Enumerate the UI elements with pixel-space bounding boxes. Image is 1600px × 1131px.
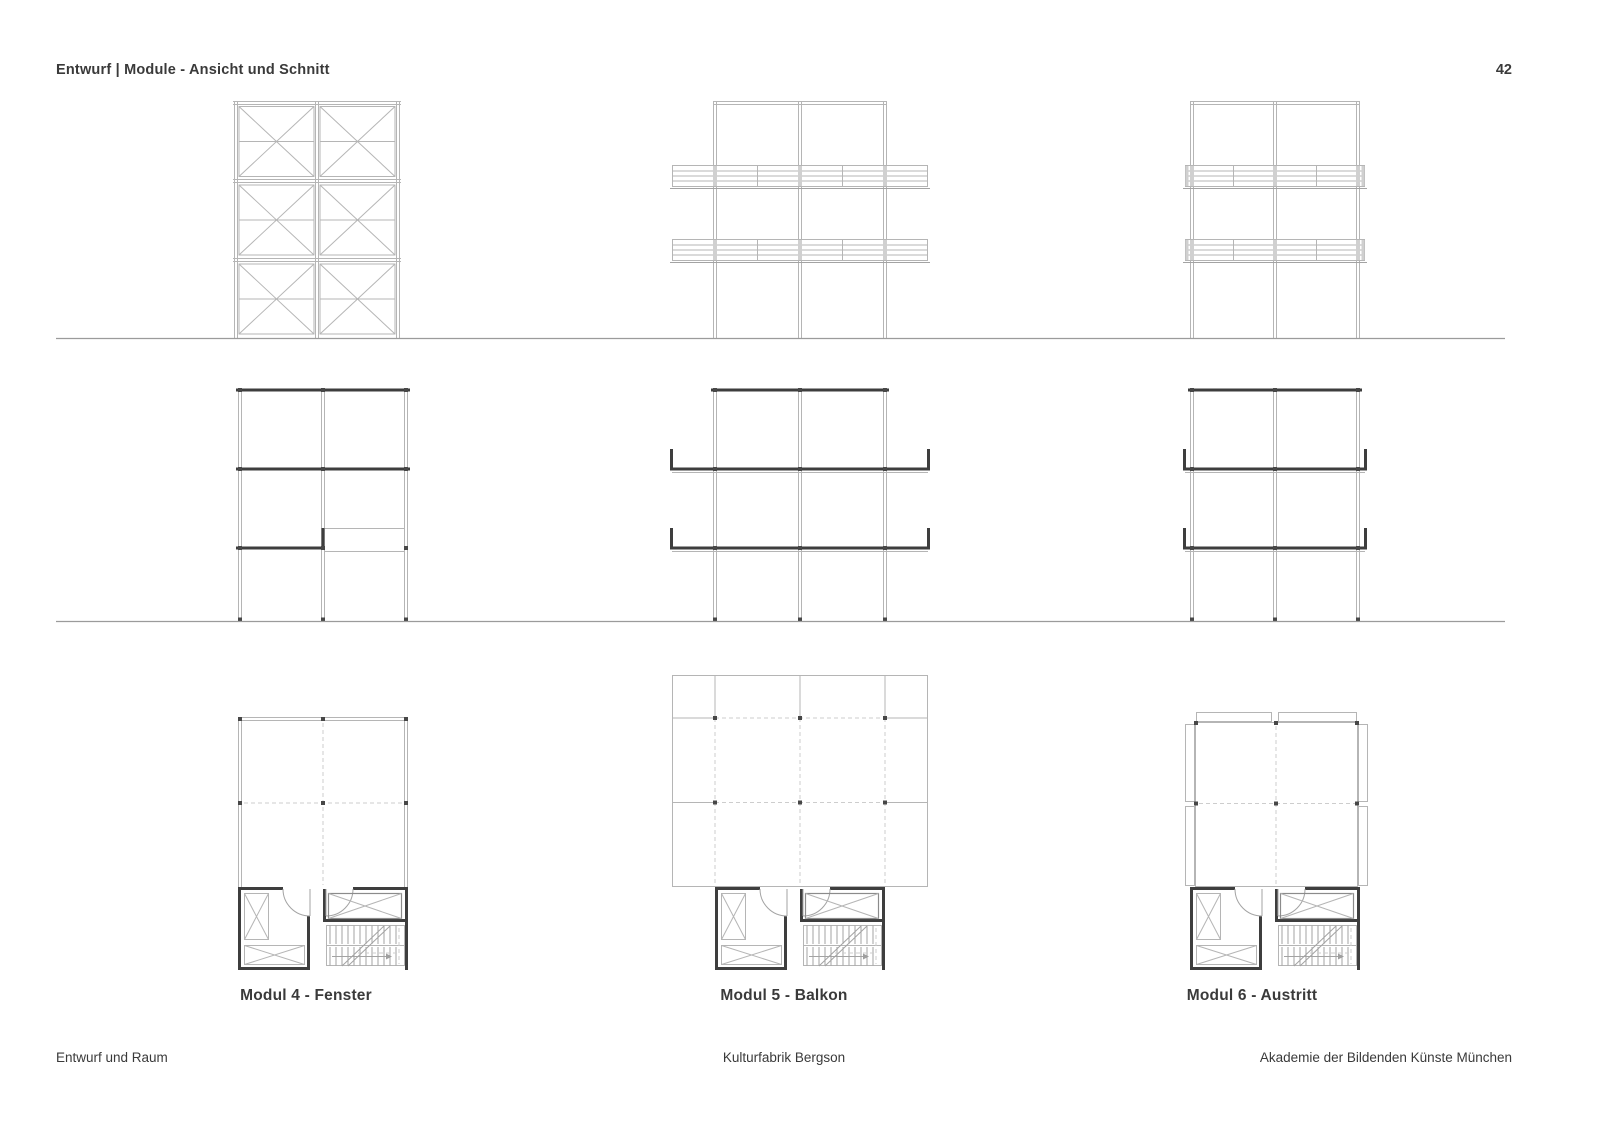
modul-5-floor-plan-drawing <box>673 676 928 971</box>
footer-course-name: Entwurf und Raum <box>56 1050 168 1065</box>
modul-5-section-drawing <box>670 388 930 622</box>
architecture-drawings-canvas <box>0 0 1600 1131</box>
modul-4-elevation-drawing <box>233 101 401 338</box>
module-6-label: Modul 6 - Austritt <box>1187 987 1317 1005</box>
modul-6-floor-plan-drawing <box>1186 713 1368 971</box>
modul-4-floor-plan-drawing <box>238 717 408 970</box>
module-4-label: Modul 4 - Fenster <box>240 987 372 1005</box>
footer-institution-name: Akademie der Bildenden Künste München <box>1260 1050 1512 1065</box>
module-5-label: Modul 5 - Balkon <box>720 987 847 1005</box>
modul-6-section-drawing <box>1183 388 1367 622</box>
modul-6-elevation-drawing <box>1183 101 1367 338</box>
modul-5-elevation-drawing <box>670 101 930 338</box>
modul-4-section-drawing <box>236 388 410 622</box>
footer-project-name: Kulturfabrik Bergson <box>723 1050 845 1065</box>
presentation-page: Entwurf | Module - Ansicht und Schnitt 4… <box>0 0 1600 1131</box>
